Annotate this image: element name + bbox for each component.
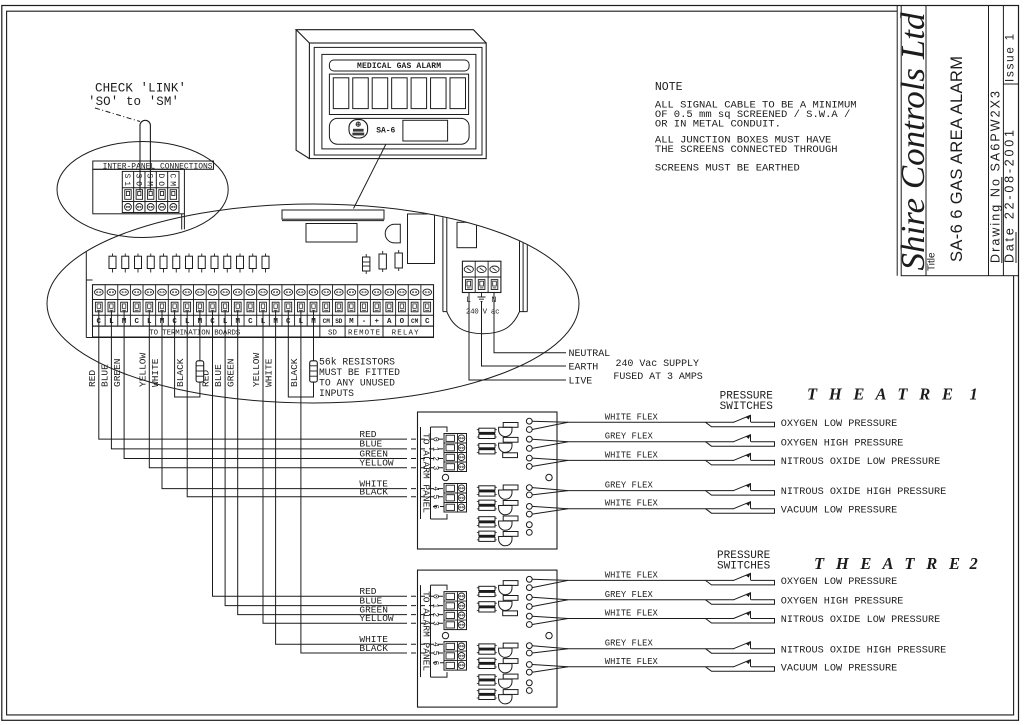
svg-text:+: + <box>374 318 379 326</box>
svg-text:LIVE: LIVE <box>569 376 593 387</box>
svg-text:NITROUS OXIDE LOW PRESSURE: NITROUS OXIDE LOW PRESSURE <box>781 457 940 468</box>
svg-text:CM: CM <box>411 318 419 325</box>
svg-text:SA-6 6 GAS AREA ALARM: SA-6 6 GAS AREA ALARM <box>948 56 966 262</box>
svg-text:OXYGEN LOW PRESSURE: OXYGEN LOW PRESSURE <box>781 577 898 588</box>
svg-text:BLACK: BLACK <box>175 358 186 387</box>
svg-text:YELLOW: YELLOW <box>251 352 262 387</box>
svg-text:SA-6: SA-6 <box>376 127 395 136</box>
svg-text:WHITE FLEX: WHITE FLEX <box>605 499 659 509</box>
svg-text:INTER-PANEL CONNECTIONS: INTER-PANEL CONNECTIONS <box>103 162 213 171</box>
svg-text:Issue 1: Issue 1 <box>1005 34 1017 82</box>
svg-text:MUST BE FITTED: MUST BE FITTED <box>319 367 400 378</box>
svg-text:RED: RED <box>87 370 98 387</box>
svg-text:SWITCHES: SWITCHES <box>717 560 771 572</box>
svg-text:SD: SD <box>328 329 337 337</box>
svg-text:C: C <box>248 318 253 326</box>
svg-text:TO ANY UNUSED: TO ANY UNUSED <box>319 378 395 389</box>
svg-text:GREEN: GREEN <box>226 358 237 387</box>
svg-text:INPUTS: INPUTS <box>319 388 354 399</box>
svg-text:WHITE FLEX: WHITE FLEX <box>605 412 659 422</box>
svg-text:NEUTRAL: NEUTRAL <box>569 349 611 360</box>
svg-text:GREEN: GREEN <box>112 358 123 387</box>
svg-text:YELLOW: YELLOW <box>137 352 148 387</box>
svg-text:'SO' to 'SM': 'SO' to 'SM' <box>88 95 179 109</box>
svg-text:MEDICAL GAS ALARM: MEDICAL GAS ALARM <box>357 62 441 71</box>
svg-text:SD: SD <box>335 318 343 325</box>
svg-text:56k RESISTORS: 56k RESISTORS <box>319 357 395 368</box>
svg-text:CM: CM <box>323 318 331 325</box>
svg-text:THE SCREENS CONNECTED THROUGH: THE SCREENS CONNECTED THROUGH <box>655 144 838 156</box>
svg-text:OXYGEN HIGH PRESSURE: OXYGEN HIGH PRESSURE <box>781 438 904 449</box>
svg-text:NOTE: NOTE <box>655 81 683 94</box>
svg-text:BLUE: BLUE <box>213 364 224 387</box>
svg-text:SWITCHES: SWITCHES <box>720 401 774 413</box>
svg-text:240 V ac: 240 V ac <box>466 308 500 316</box>
svg-text:REMOTE: REMOTE <box>348 329 381 337</box>
svg-text:NITROUS OXIDE HIGH PRESSURE: NITROUS OXIDE HIGH PRESSURE <box>781 487 947 498</box>
svg-text:TO ALARM PANEL: TO ALARM PANEL <box>420 591 431 671</box>
svg-text:BLUE: BLUE <box>99 364 110 387</box>
svg-text:WHITE FLEX: WHITE FLEX <box>605 450 659 460</box>
svg-text:FUSED AT 3 AMPS: FUSED AT 3 AMPS <box>613 372 702 383</box>
svg-text:GREY FLEX: GREY FLEX <box>605 639 654 649</box>
svg-text:TO TERMINATION BOARDS: TO TERMINATION BOARDS <box>149 329 241 337</box>
svg-text:WHITE FLEX: WHITE FLEX <box>605 570 659 580</box>
svg-text:OR IN METAL CONDUIT.: OR IN METAL CONDUIT. <box>655 119 781 131</box>
svg-text:SCREENS MUST BE EARTHED: SCREENS MUST BE EARTHED <box>655 163 800 175</box>
svg-text:YELLOW: YELLOW <box>359 458 394 469</box>
svg-text:GREY FLEX: GREY FLEX <box>605 481 654 491</box>
svg-text:Drawing No SA6PW2X3: Drawing No SA6PW2X3 <box>988 91 1002 263</box>
svg-text:A: A <box>387 318 392 326</box>
svg-text:WHITE FLEX: WHITE FLEX <box>605 609 659 619</box>
svg-text:WHITE: WHITE <box>150 358 161 387</box>
svg-text:-: - <box>362 318 367 326</box>
svg-text:OXYGEN HIGH PRESSURE: OXYGEN HIGH PRESSURE <box>781 596 904 607</box>
svg-text:BLACK: BLACK <box>359 487 388 498</box>
svg-text:Shire Controls Ltd: Shire Controls Ltd <box>895 11 932 270</box>
svg-text:CHECK 'LINK': CHECK 'LINK' <box>95 82 186 96</box>
svg-text:BLACK: BLACK <box>359 643 388 654</box>
svg-text:1: 1 <box>970 385 978 404</box>
svg-text:WHITE FLEX: WHITE FLEX <box>605 657 659 667</box>
svg-text:EARTH: EARTH <box>569 362 599 373</box>
svg-text:O: O <box>400 318 405 326</box>
svg-text:GREY FLEX: GREY FLEX <box>605 590 654 600</box>
svg-text:RELAY: RELAY <box>392 329 420 337</box>
svg-text:VACUUM LOW PRESSURE: VACUUM LOW PRESSURE <box>781 663 898 674</box>
svg-text:C: C <box>134 318 139 326</box>
svg-text:OXYGEN LOW PRESSURE: OXYGEN LOW PRESSURE <box>781 419 898 430</box>
svg-text:M: M <box>349 318 354 326</box>
svg-text:GREY FLEX: GREY FLEX <box>605 432 654 442</box>
svg-text:WHITE: WHITE <box>264 358 275 387</box>
svg-text:NITROUS OXIDE LOW PRESSURE: NITROUS OXIDE LOW PRESSURE <box>781 615 940 626</box>
svg-text:YELLOW: YELLOW <box>359 613 394 624</box>
svg-text:Title: Title <box>927 252 938 271</box>
svg-text:240 Vac SUPPLY: 240 Vac SUPPLY <box>616 359 700 370</box>
svg-text:VACUUM LOW PRESSURE: VACUUM LOW PRESSURE <box>781 505 898 516</box>
svg-text:NITROUS OXIDE HIGH PRESSURE: NITROUS OXIDE HIGH PRESSURE <box>781 645 947 656</box>
svg-text:C: C <box>425 318 430 326</box>
svg-text:2: 2 <box>969 554 978 573</box>
svg-text:BLACK: BLACK <box>289 358 300 387</box>
svg-text:TO ALARM PANEL: TO ALARM PANEL <box>420 433 431 513</box>
